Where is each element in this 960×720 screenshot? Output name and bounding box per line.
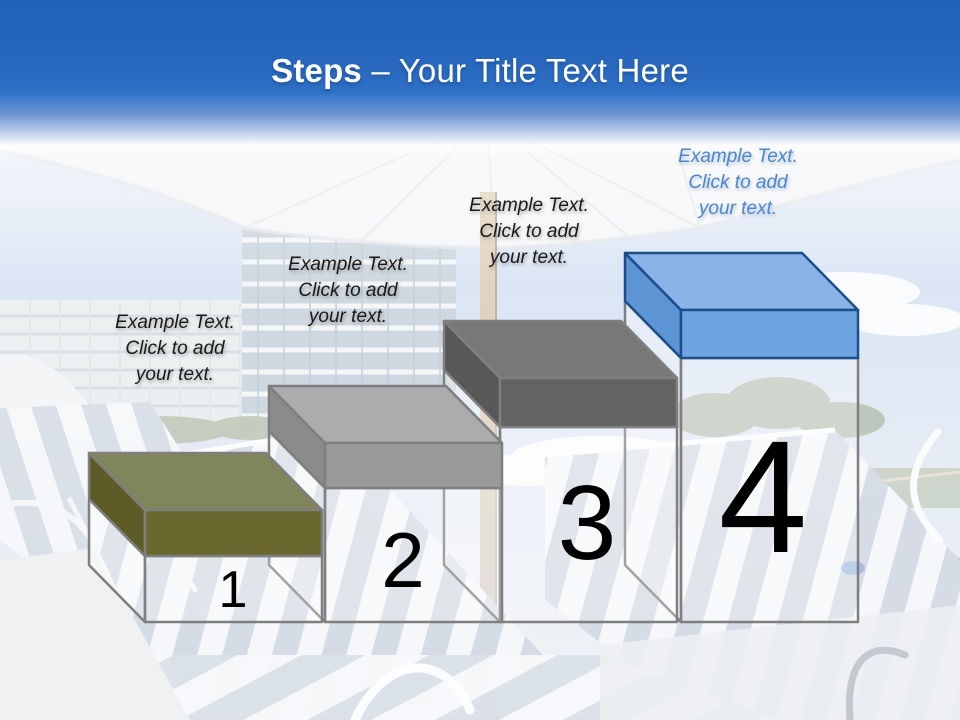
step-1-label[interactable]: Example Text. Click to add your text. xyxy=(75,310,275,388)
step-4-label[interactable]: Example Text. Click to add your text. xyxy=(638,144,838,222)
slide-canvas: Steps – Your Title Text Here xyxy=(0,0,960,720)
step-3-number[interactable]: 3 xyxy=(558,470,617,576)
step-2-number[interactable]: 2 xyxy=(381,521,424,599)
step-1-box[interactable] xyxy=(89,453,322,622)
step-3-label[interactable]: Example Text. Click to add your text. xyxy=(429,193,629,271)
step-2-label[interactable]: Example Text. Click to add your text. xyxy=(248,252,448,330)
step-1-number[interactable]: 1 xyxy=(219,564,248,616)
step-4-number[interactable]: 4 xyxy=(719,417,808,577)
